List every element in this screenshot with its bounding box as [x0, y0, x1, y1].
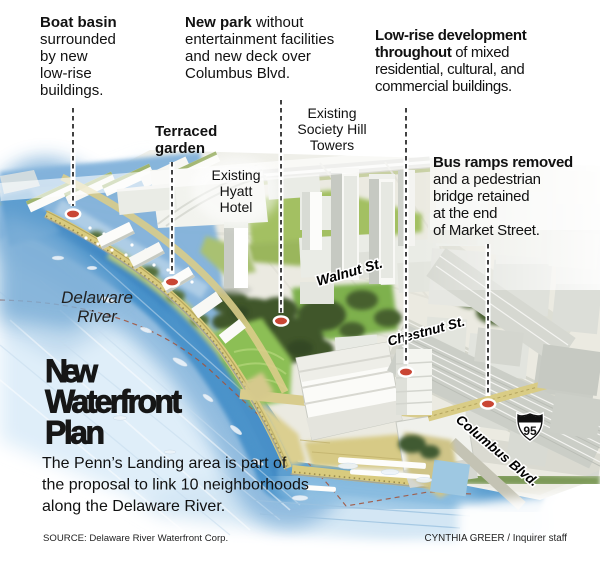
- svg-text:SOURCE: Delaware River Waterfr: SOURCE: Delaware River Waterfront Corp.: [43, 533, 228, 544]
- svg-text:CYNTHIA GREER / Inquirer staff: CYNTHIA GREER / Inquirer staff: [425, 533, 568, 544]
- svg-text:95: 95: [523, 424, 537, 438]
- svg-text:Low-rise developmentthroughout: Low-rise developmentthroughout of mixedr…: [375, 27, 527, 95]
